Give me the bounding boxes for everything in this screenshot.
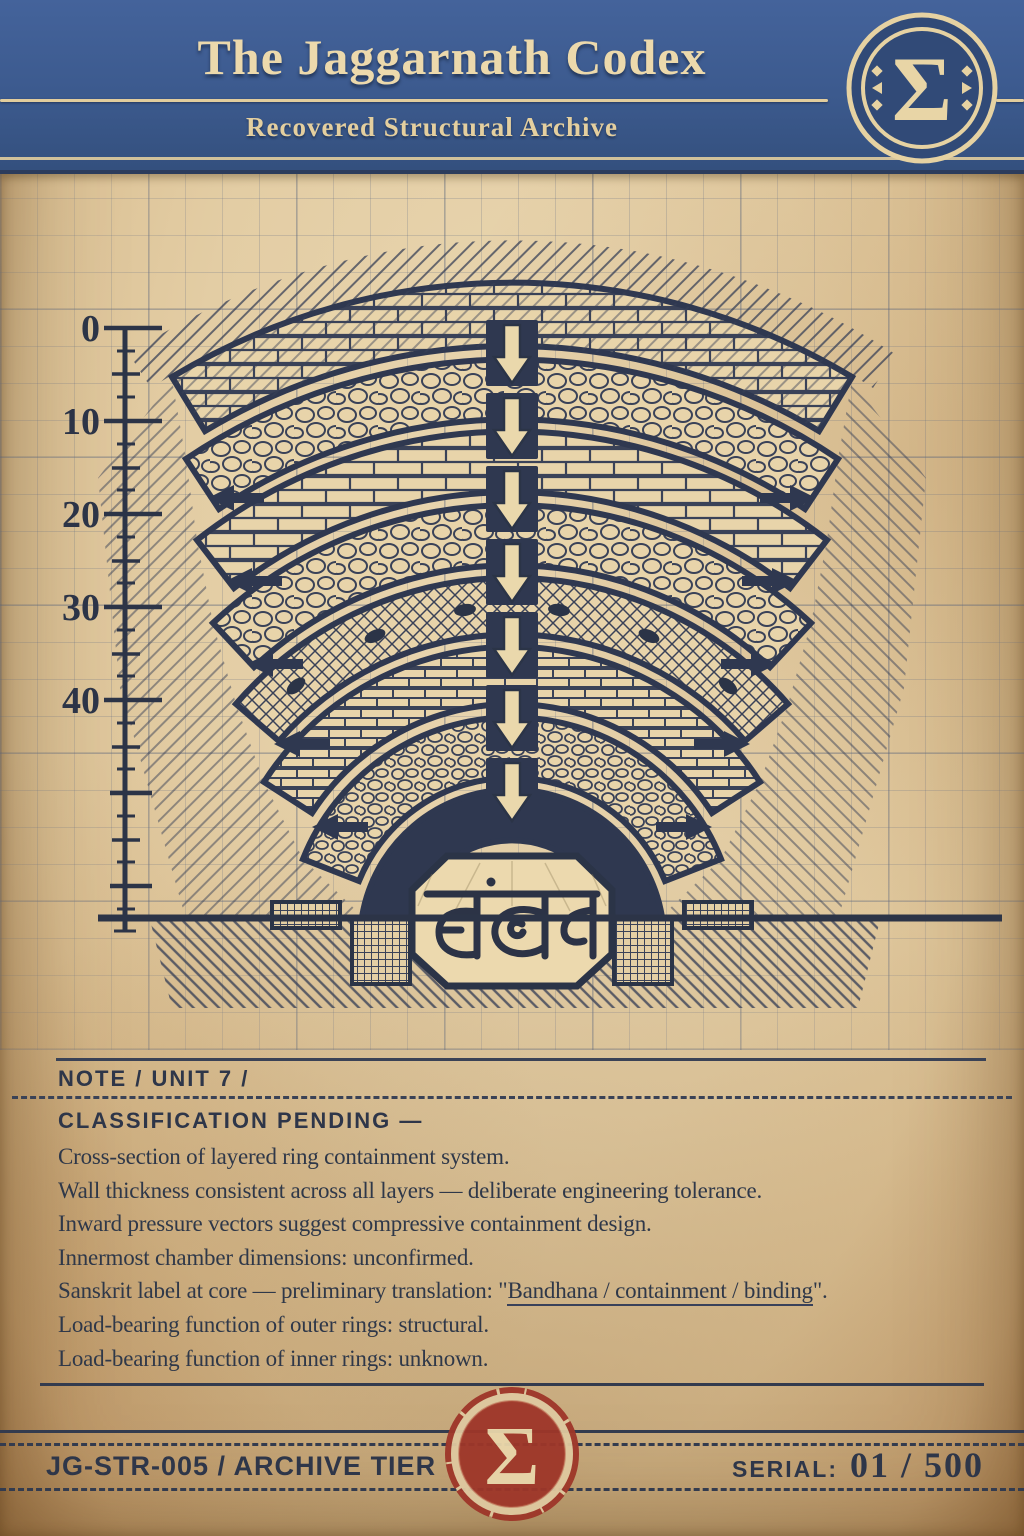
scale-tick-label: 20 <box>62 494 100 536</box>
archive-card: The Jaggarnath Codex Recovered Structura… <box>0 0 1024 1536</box>
header-banner: The Jaggarnath Codex Recovered Structura… <box>0 0 1024 170</box>
note-body: Cross-section of layered ring containmen… <box>58 1140 988 1375</box>
sanskrit-translation: Bandhana / containment / binding <box>507 1278 812 1306</box>
sigma-badge-icon: Σ <box>842 8 1002 168</box>
serial-value: 01 / 500 <box>850 1444 984 1486</box>
header-divider-left <box>0 99 828 102</box>
catalog-number: JG-STR-005 / ARCHIVE TIER <box>46 1451 436 1482</box>
serial-number: SERIAL: 01 / 500 <box>732 1444 984 1486</box>
note-line-sanskrit: Sanskrit label at core — preliminary tra… <box>58 1274 988 1308</box>
page-title: The Jaggarnath Codex <box>0 28 904 86</box>
sigma-stamp-icon: Σ <box>432 1380 592 1532</box>
structural-diagram: बंधन 0 10 20 30 40 <box>0 168 1024 1048</box>
classification-heading: CLASSIFICATION PENDING — <box>58 1108 423 1134</box>
note-line: Load-bearing function of inner rings: un… <box>58 1342 988 1376</box>
note-line: Load-bearing function of outer rings: st… <box>58 1308 988 1342</box>
stamp-sigma-glyph: Σ <box>485 1410 540 1503</box>
note-line: Innermost chamber dimensions: unconfirme… <box>58 1241 988 1275</box>
note-dashed-rule <box>12 1096 1012 1099</box>
scale-tick-label: 10 <box>62 401 100 443</box>
page-subtitle: Recovered Structural Archive <box>0 112 864 143</box>
keystone-load-arrows <box>486 320 538 824</box>
scale-tick-label: 30 <box>62 587 100 629</box>
scale-tick-label: 0 <box>81 308 100 350</box>
note-top-rule <box>56 1058 986 1061</box>
sanskrit-prefix: Sanskrit label at core — preliminary tra… <box>58 1278 507 1303</box>
note-heading: NOTE / UNIT 7 / <box>58 1066 249 1092</box>
sigma-badge: Σ <box>842 8 1002 168</box>
note-line: Inward pressure vectors suggest compress… <box>58 1207 988 1241</box>
sanskrit-suffix: ". <box>813 1278 828 1303</box>
scale-tick-label: 40 <box>62 680 100 722</box>
note-line: Wall thickness consistent across all lay… <box>58 1174 988 1208</box>
serial-label: SERIAL: <box>732 1456 838 1483</box>
note-line: Cross-section of layered ring containmen… <box>58 1140 988 1174</box>
badge-sigma-glyph: Σ <box>892 38 952 140</box>
sigma-stamp: Σ <box>432 1380 592 1532</box>
